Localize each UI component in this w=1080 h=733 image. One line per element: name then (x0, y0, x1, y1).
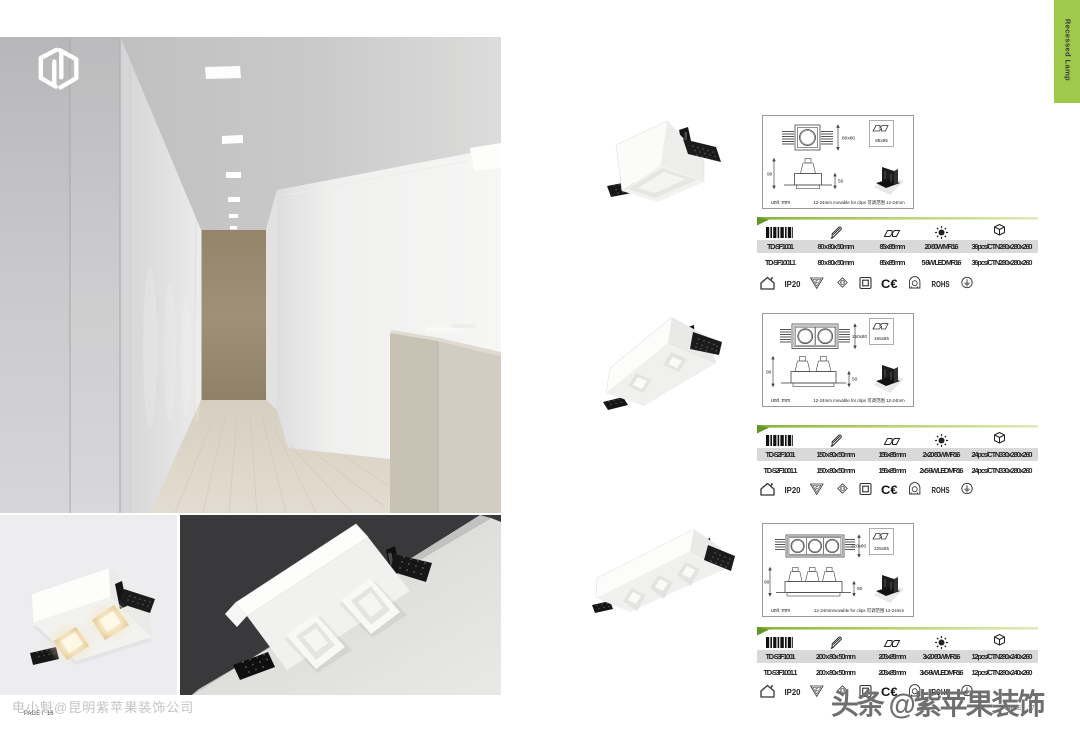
svg-text:TD-SF1001: TD-SF1001 (767, 242, 794, 251)
svg-text:150x80: 150x80 (852, 334, 867, 340)
svg-text:200 x 80x 50mm: 200 x 80x 50mm (816, 652, 856, 661)
svg-text:150 x 80x 50mm: 150 x 80x 50mm (817, 466, 856, 475)
svg-text:50: 50 (852, 377, 858, 383)
svg-text:12pcs/CTN280x240x260: 12pcs/CTN280x240x260 (972, 652, 1033, 661)
svg-text:155 x 85mm: 155 x 85mm (879, 450, 907, 459)
svg-text:TD-S3F1001.1: TD-S3F1001.1 (764, 668, 798, 677)
svg-text:220x80: 220x80 (851, 544, 866, 550)
svg-text:36pcs/CTN280x280x260: 36pcs/CTN280x280x260 (972, 258, 1033, 267)
svg-text:225x85: 225x85 (874, 546, 890, 551)
svg-text:unit :mm: unit :mm (771, 398, 790, 404)
svg-text:TD-S2F1001.1: TD-S2F1001.1 (764, 466, 798, 475)
svg-text:155x85: 155x85 (874, 336, 890, 341)
svg-text:2x5-9W LED MR16: 2x5-9W LED MR16 (920, 466, 964, 475)
svg-text:150 x 80x 50mm: 150 x 80x 50mm (817, 450, 856, 459)
svg-text:80 x 80x 50mm: 80 x 80x 50mm (818, 242, 855, 251)
svg-text:TD-SF1001.1: TD-SF1001.1 (765, 258, 796, 267)
svg-text:12-24mmmovable for clips 可调范围: 12-24mmmovable for clips 可调范围 12-24mm (814, 607, 904, 614)
svg-text:80 x 80x 50mm: 80 x 80x 50mm (818, 258, 855, 267)
svg-text:205 x 85mm: 205 x 85mm (879, 668, 907, 677)
svg-text:85x85: 85x85 (875, 138, 888, 143)
svg-text:90: 90 (764, 580, 770, 586)
svg-text:90: 90 (766, 370, 772, 376)
svg-text:24pcs/CTN330x280x260: 24pcs/CTN330x280x260 (972, 450, 1033, 459)
svg-text:20-50W MR16: 20-50W MR16 (925, 242, 959, 251)
svg-text:36pcs/CTN280x280x260: 36pcs/CTN280x280x260 (972, 242, 1033, 251)
svg-text:5-9W LED MR16: 5-9W LED MR16 (922, 258, 962, 267)
svg-text:2x20-50W MR16: 2x20-50W MR16 (923, 450, 961, 459)
svg-text:TD-S2F1001: TD-S2F1001 (766, 450, 796, 459)
svg-text:unit :mm: unit :mm (771, 608, 790, 614)
svg-text:TD-S3F1001: TD-S3F1001 (766, 652, 796, 661)
svg-text:50: 50 (838, 179, 844, 185)
svg-text:50: 50 (857, 586, 863, 592)
svg-text:3x20-50W MR16: 3x20-50W MR16 (923, 652, 961, 661)
svg-text:90: 90 (767, 172, 773, 178)
svg-text:85 x 85mm: 85 x 85mm (880, 258, 906, 267)
svg-text:85 x 85mm: 85 x 85mm (880, 242, 906, 251)
svg-text:80x80: 80x80 (842, 136, 855, 142)
svg-text:12pcs/CTN280x240x260: 12pcs/CTN280x240x260 (972, 668, 1033, 677)
svg-text:unit :mm: unit :mm (771, 200, 790, 206)
svg-text:24pcs/CTN330x280x260: 24pcs/CTN330x280x260 (972, 466, 1033, 475)
svg-text:155 x 85mm: 155 x 85mm (879, 466, 907, 475)
svg-text:12-24mm movable for clips 可调范围: 12-24mm movable for clips 可调范围 12-24mm (813, 199, 905, 206)
svg-text:3x5-9W LED MR16: 3x5-9W LED MR16 (920, 668, 964, 677)
svg-text:205 x 85mm: 205 x 85mm (879, 652, 907, 661)
svg-text:200 x 80x 50mm: 200 x 80x 50mm (816, 668, 856, 677)
svg-text:12-24mm movable for clips 可调范围: 12-24mm movable for clips 可调范围 12-24mm (813, 397, 905, 404)
